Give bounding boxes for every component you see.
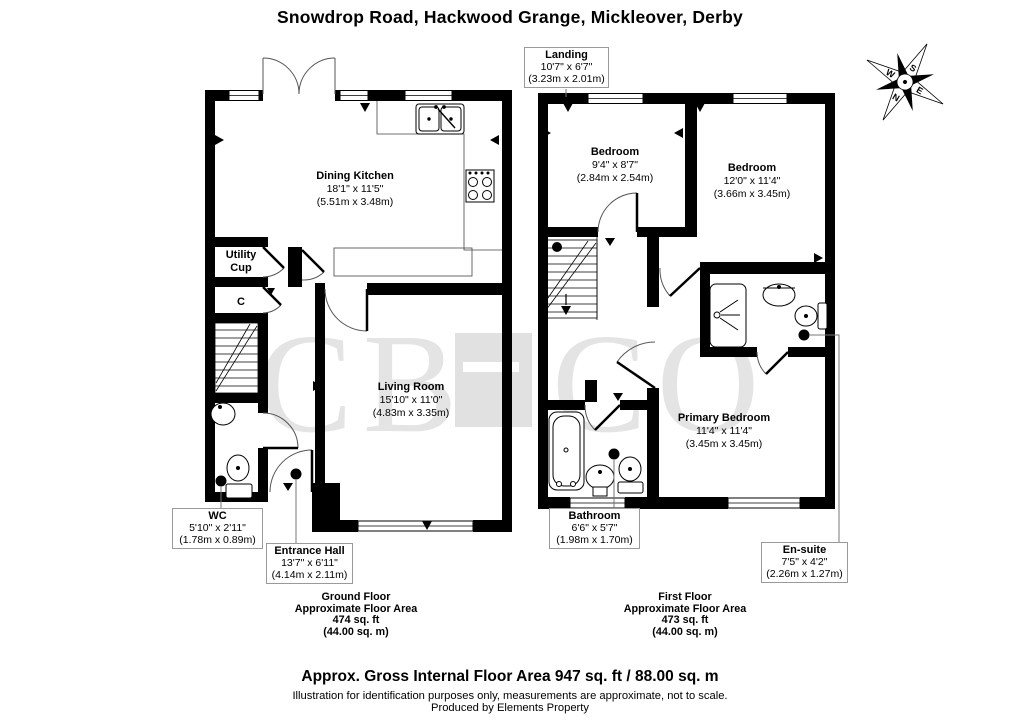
floorplan-drawing: S N W E xyxy=(0,0,1020,720)
room-metric: (3.23m x 2.01m) xyxy=(526,74,607,86)
room-metric: (2.26m x 1.27m) xyxy=(763,569,846,581)
floorplan-page: Snowdrop Road, Hackwood Grange, Mickleov… xyxy=(0,0,1020,720)
room-dims: 7'5" x 4'2" xyxy=(763,557,846,569)
footer-total-area: Approx. Gross Internal Floor Area 947 sq… xyxy=(0,668,1020,686)
room-metric: (1.78m x 0.89m) xyxy=(174,535,261,547)
room-label-bedroom-2: Bedroom 12'0" x 11'4" (3.66m x 3.45m) xyxy=(672,162,832,200)
room-metric: (4.14m x 2.11m) xyxy=(268,570,351,582)
callout-landing: Landing 10'7" x 6'7" (3.23m x 2.01m) xyxy=(524,47,609,88)
wc-sink-icon xyxy=(211,403,235,425)
caption-area-m: (44.00 sq. m) xyxy=(605,627,765,639)
compass-icon: S N W E xyxy=(845,22,965,142)
room-dims: 12'0" x 11'4" xyxy=(672,175,832,188)
room-label-cupboard: C xyxy=(230,296,252,309)
french-doors-icon xyxy=(263,58,335,94)
room-metric: (3.45m x 3.45m) xyxy=(634,438,814,451)
bathroom-basin-icon xyxy=(586,465,614,496)
room-dims: 11'4" x 11'4" xyxy=(634,425,814,438)
room-label-bedroom-1: Bedroom 9'4" x 8'7" (2.84m x 2.54m) xyxy=(535,146,695,184)
callout-bathroom: Bathroom 6'6" x 5'7" (1.98m x 1.70m) xyxy=(549,508,640,549)
room-name: Cup xyxy=(213,262,269,275)
ground-floor-walls xyxy=(205,90,512,532)
room-dims: 5'10" x 2'11" xyxy=(174,523,261,535)
room-dims: 15'10" x 11'0" xyxy=(331,394,491,407)
shower-icon xyxy=(710,284,746,347)
room-dims: 6'6" x 5'7" xyxy=(551,523,638,535)
footer-credit: Produced by Elements Property xyxy=(0,702,1020,714)
room-metric: (5.51m x 3.48m) xyxy=(275,196,435,209)
bathroom-toilet-icon xyxy=(618,457,643,493)
room-label-utility: Utility Cup xyxy=(213,249,269,275)
hob-icon xyxy=(466,170,494,202)
callout-entrance-hall: Entrance Hall 13'7" x 6'11" (4.14m x 2.1… xyxy=(266,543,353,584)
room-name: Primary Bedroom xyxy=(634,412,814,425)
first-floor-caption: First Floor Approximate Floor Area 473 s… xyxy=(605,592,765,638)
room-dims: 9'4" x 8'7" xyxy=(535,159,695,172)
callout-ensuite: En-suite 7'5" x 4'2" (2.26m x 1.27m) xyxy=(761,542,848,583)
ground-floor-caption: Ground Floor Approximate Floor Area 474 … xyxy=(276,592,436,638)
caption-area-m: (44.00 sq. m) xyxy=(276,627,436,639)
room-metric: (3.66m x 3.45m) xyxy=(672,188,832,201)
caption-floor: First Floor xyxy=(605,592,765,604)
room-metric: (1.98m x 1.70m) xyxy=(551,535,638,547)
room-name: C xyxy=(230,296,252,309)
room-dims: 10'7" x 6'7" xyxy=(526,62,607,74)
stair-newel-dot xyxy=(552,242,562,252)
footer-disclaimer: Illustration for identification purposes… xyxy=(0,690,1020,702)
room-metric: (4.83m x 3.35m) xyxy=(331,407,491,420)
room-dims: 18'1" x 11'5" xyxy=(275,183,435,196)
room-name: Dining Kitchen xyxy=(275,170,435,183)
room-label-living-room: Living Room 15'10" x 11'0" (4.83m x 3.35… xyxy=(331,381,491,419)
wc-toilet-icon xyxy=(226,455,252,498)
room-dims: 13'7" x 6'11" xyxy=(268,558,351,570)
caption-floor: Ground Floor xyxy=(276,592,436,604)
ensuite-toilet-icon xyxy=(795,303,827,329)
room-label-dining-kitchen: Dining Kitchen 18'1" x 11'5" (5.51m x 3.… xyxy=(275,170,435,208)
room-name: Utility xyxy=(213,249,269,262)
ground-stairs-icon xyxy=(215,323,258,393)
room-name: Bedroom xyxy=(672,162,832,175)
kitchen-sink-icon xyxy=(416,104,464,134)
room-name: Living Room xyxy=(331,381,491,394)
ensuite-basin-icon xyxy=(763,284,795,306)
callout-wc: WC 5'10" x 2'11" (1.78m x 0.89m) xyxy=(172,508,263,549)
room-metric: (2.84m x 2.54m) xyxy=(535,172,695,185)
room-label-primary-bedroom: Primary Bedroom 11'4" x 11'4" (3.45m x 3… xyxy=(634,412,814,450)
bath-icon xyxy=(549,412,584,490)
room-name: Bedroom xyxy=(535,146,695,159)
